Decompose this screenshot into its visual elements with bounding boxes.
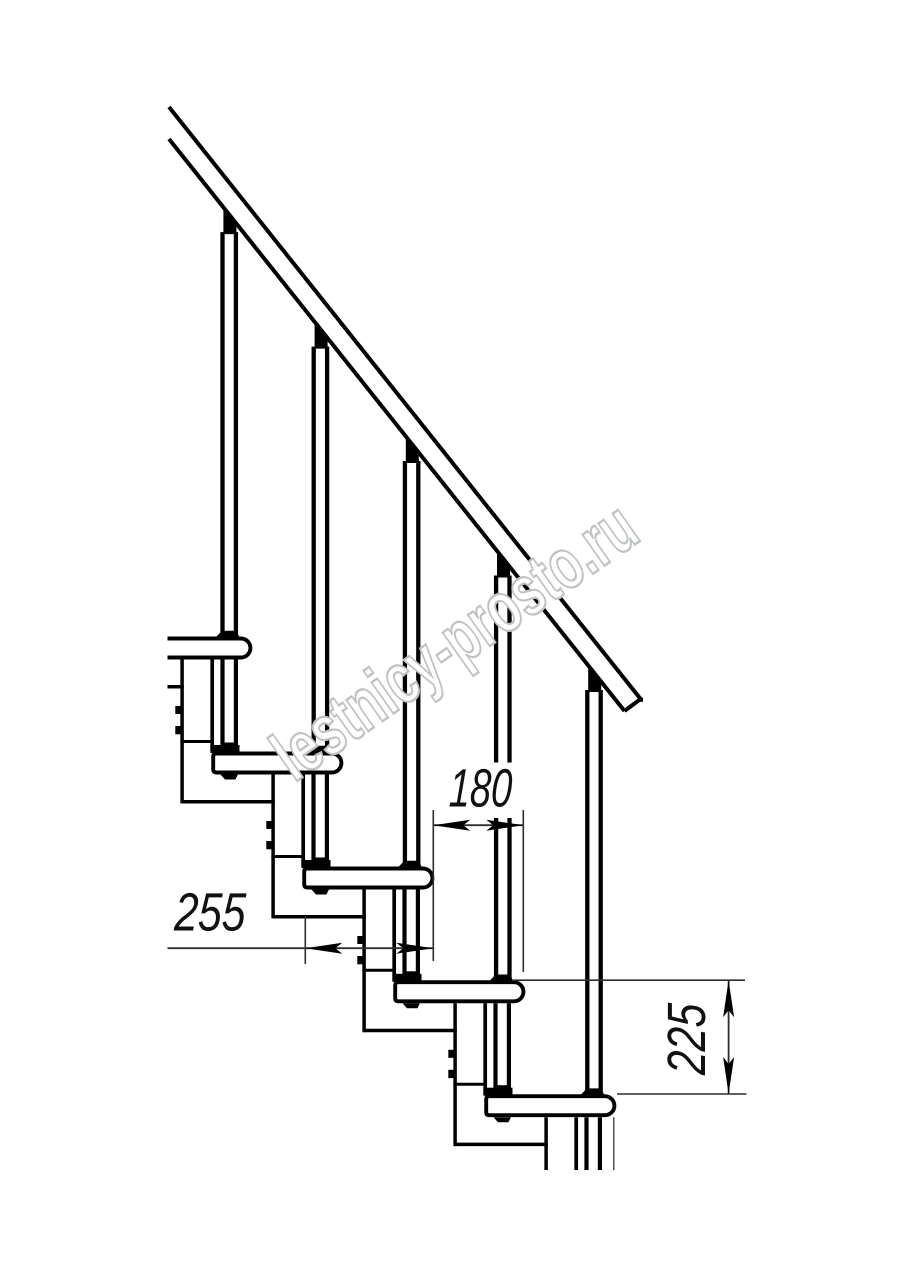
svg-text:225: 225 bbox=[657, 1001, 717, 1076]
svg-text:180: 180 bbox=[448, 758, 513, 818]
svg-text:255: 255 bbox=[172, 883, 247, 943]
